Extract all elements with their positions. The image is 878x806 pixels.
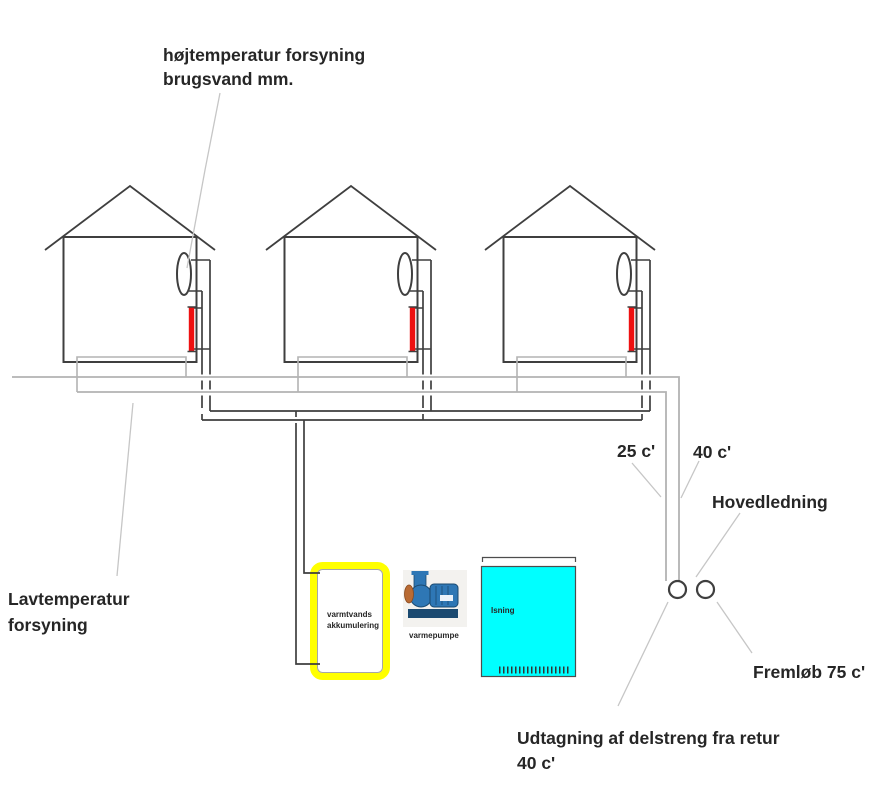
leader-25c [632,463,661,497]
pump-top-flange [412,571,429,575]
pump-inlet-flange [405,585,414,603]
ice-tank-label: Isning [491,606,515,615]
house-2 [266,186,436,420]
diagram-canvas: varmtvands akkumulering varmepumpe Isnin… [0,0,878,806]
accumulator-label-line2: akkumulering [327,621,379,630]
label-high-temp-line1: højtemperatur forsyning [163,45,365,65]
main-line-tap-supply [697,581,714,598]
accumulator-tank: varmtvands akkumulering [314,566,387,677]
leader-40c [681,461,699,498]
main-line-tap-return [669,581,686,598]
leader-low-temp [117,403,133,576]
high-temp-main-pair [202,411,650,420]
text-labels: højtemperatur forsyning brugsvand mm. La… [8,45,865,773]
label-25c: 25 c' [617,441,655,461]
leader-hovedledning [696,513,740,577]
low-temp-mains [12,377,679,581]
label-fremlob: Fremløb 75 c' [753,662,865,682]
label-udtagning-line2: 40 c' [517,753,555,773]
ice-tank-body [482,567,576,677]
heat-pump-photo: varmepumpe [403,570,467,640]
label-low-temp-line1: Lavtemperatur [8,589,130,609]
pump-name-tag [440,595,453,601]
accumulator-label-line1: varmtvands [327,610,372,619]
label-udtagning-line1: Udtagning af delstreng fra retur [517,728,780,748]
ice-tank-lid [483,558,576,563]
low-temp-main-upper [12,377,679,581]
district-heating-diagram: varmtvands akkumulering varmepumpe Isnin… [0,0,878,806]
leader-fremlob [717,602,752,653]
label-40c: 40 c' [693,442,731,462]
label-hovedledning: Hovedledning [712,492,828,512]
house-3 [485,186,655,420]
ice-storage-tank: Isning [482,558,576,677]
pump-base [408,609,458,618]
leader-udtagning [618,602,668,706]
heat-pump-label: varmepumpe [409,631,459,640]
house-1 [45,186,215,420]
label-high-temp-line2: brugsvand mm. [163,69,293,89]
label-low-temp-line2: forsyning [8,615,88,635]
